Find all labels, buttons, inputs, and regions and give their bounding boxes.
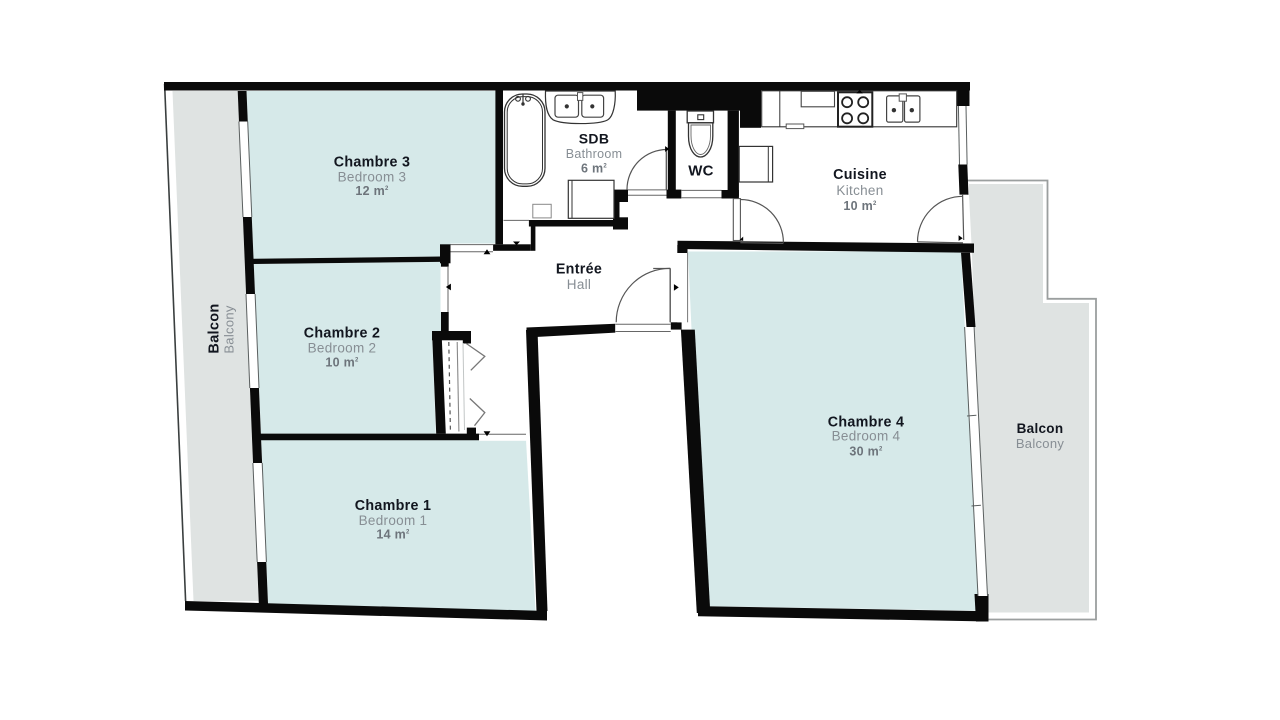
- svg-text:Bedroom 1: Bedroom 1: [359, 513, 428, 528]
- svg-text:SDB: SDB: [579, 131, 609, 147]
- svg-text:Entrée: Entrée: [556, 262, 602, 278]
- svg-text:Cuisine: Cuisine: [833, 167, 887, 183]
- svg-text:Kitchen: Kitchen: [836, 183, 883, 198]
- svg-text:Chambre 1: Chambre 1: [355, 498, 432, 514]
- svg-text:Balcon: Balcon: [207, 303, 223, 353]
- svg-text:10 m2: 10 m2: [325, 356, 359, 370]
- svg-text:Chambre 3: Chambre 3: [334, 155, 411, 171]
- svg-text:WC: WC: [688, 163, 714, 180]
- svg-text:10 m2: 10 m2: [843, 199, 877, 213]
- svg-text:14 m2: 14 m2: [376, 528, 410, 542]
- svg-text:Chambre 2: Chambre 2: [304, 326, 381, 342]
- svg-text:Bathroom: Bathroom: [566, 147, 623, 161]
- svg-text:12 m2: 12 m2: [355, 184, 389, 198]
- svg-text:Balcony: Balcony: [1016, 436, 1065, 451]
- svg-text:30 m2: 30 m2: [849, 445, 883, 459]
- svg-text:Bedroom 2: Bedroom 2: [308, 341, 377, 356]
- svg-text:Balcony: Balcony: [222, 305, 237, 354]
- svg-text:Hall: Hall: [567, 277, 591, 292]
- svg-text:Bedroom 3: Bedroom 3: [338, 170, 407, 185]
- svg-text:Balcon: Balcon: [1017, 421, 1064, 436]
- svg-text:Bedroom 4: Bedroom 4: [832, 429, 901, 444]
